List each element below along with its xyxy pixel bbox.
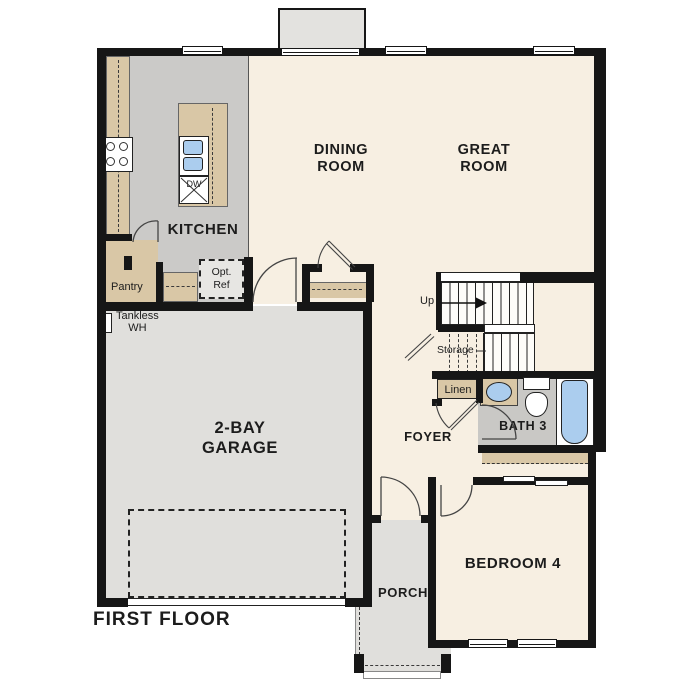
porch-post (354, 654, 364, 673)
wall (363, 302, 372, 607)
wall (438, 325, 485, 332)
burner-icon (119, 142, 128, 151)
cooktop (102, 137, 133, 172)
room-label-great: GREATROOM (458, 142, 511, 177)
floor-plan: DW Pantry Opt. Ref Tankless WH (0, 0, 687, 687)
wall (508, 640, 517, 648)
window (533, 46, 575, 55)
wall (345, 598, 372, 607)
wall (124, 256, 132, 270)
room-label-bedroom4: BEDROOM 4 (465, 555, 561, 573)
bath-sink (486, 382, 512, 402)
closet-sliding-door (503, 476, 535, 482)
bathtub (561, 380, 588, 444)
storage-dashline (476, 334, 477, 373)
coat-closet-shelf (310, 282, 366, 298)
linen-closet: Linen (437, 379, 479, 399)
burner-icon (106, 142, 115, 151)
room-label-porch: PORCH (378, 585, 428, 601)
room-label-foyer: FOYER (404, 429, 452, 445)
wall (421, 515, 436, 523)
window (468, 639, 508, 648)
linen-label: Linen (445, 384, 472, 396)
stair-mid-landing (484, 324, 535, 333)
pantry-label: Pantry (111, 281, 143, 293)
kitchen-dining-boundary (248, 56, 249, 258)
closet-rod-dashline (312, 289, 362, 290)
garage-door (128, 598, 345, 606)
sink-basin (183, 140, 203, 155)
fireplace-bumpout (278, 8, 366, 50)
wall (588, 445, 596, 648)
wall (478, 445, 596, 453)
wall (428, 477, 436, 648)
stairs-up-label: Up (419, 295, 435, 307)
window (281, 48, 360, 56)
window (517, 639, 557, 648)
cabinet-dashline (166, 286, 195, 287)
wall (432, 399, 442, 406)
bedroom-closet-shelf (482, 453, 588, 464)
wall (436, 272, 441, 330)
garage-door-swing-area (128, 509, 346, 598)
burner-icon (119, 157, 128, 166)
wall (520, 272, 596, 283)
burner-icon (106, 157, 115, 166)
floor-porch-lower (355, 607, 428, 672)
wall (302, 264, 322, 272)
stairs-upper-run (440, 282, 534, 325)
wall (428, 640, 468, 648)
kitchen-sink (179, 136, 209, 176)
room-label-dining: DININGROOM (314, 142, 368, 177)
wall (297, 302, 372, 311)
stairs-lower-run (483, 333, 535, 375)
wall (244, 257, 253, 304)
porch-dashline (359, 607, 360, 655)
optional-refrigerator: Opt. Ref (199, 259, 244, 299)
wall (363, 515, 381, 523)
stair-landing-rail (440, 272, 522, 282)
window (385, 46, 427, 55)
wall (432, 371, 596, 379)
porch-post (441, 654, 451, 673)
porch-dashline (365, 665, 440, 666)
tankless-label-line2: WH (116, 322, 159, 334)
storage-label: Storage (437, 345, 474, 357)
base-cabinet (163, 272, 198, 302)
room-label-garage: 2-BAYGARAGE (202, 419, 278, 459)
toilet-tank (523, 377, 550, 390)
wall (104, 234, 132, 241)
opt-ref-label-line1: Opt. (201, 266, 242, 279)
wall (594, 48, 606, 452)
room-label-kitchen: KITCHEN (168, 221, 239, 239)
window (182, 46, 223, 55)
room-label-bath3: BATH 3 (499, 419, 547, 434)
pantry-floor (104, 240, 158, 304)
dishwasher-label: DW (180, 179, 208, 189)
tankless-label: Tankless WH (116, 310, 159, 334)
plan-title: FIRST FLOOR (93, 609, 231, 631)
closet-sliding-door (535, 480, 568, 486)
wall (476, 379, 483, 403)
sink-basin (183, 157, 203, 171)
tankless-label-line1: Tankless (116, 310, 159, 322)
wall (366, 264, 374, 302)
island-centerline (212, 108, 213, 204)
wall (97, 48, 106, 607)
porch-step (363, 671, 441, 679)
dishwasher: DW (179, 176, 209, 204)
opt-ref-label-line2: Ref (201, 279, 242, 292)
